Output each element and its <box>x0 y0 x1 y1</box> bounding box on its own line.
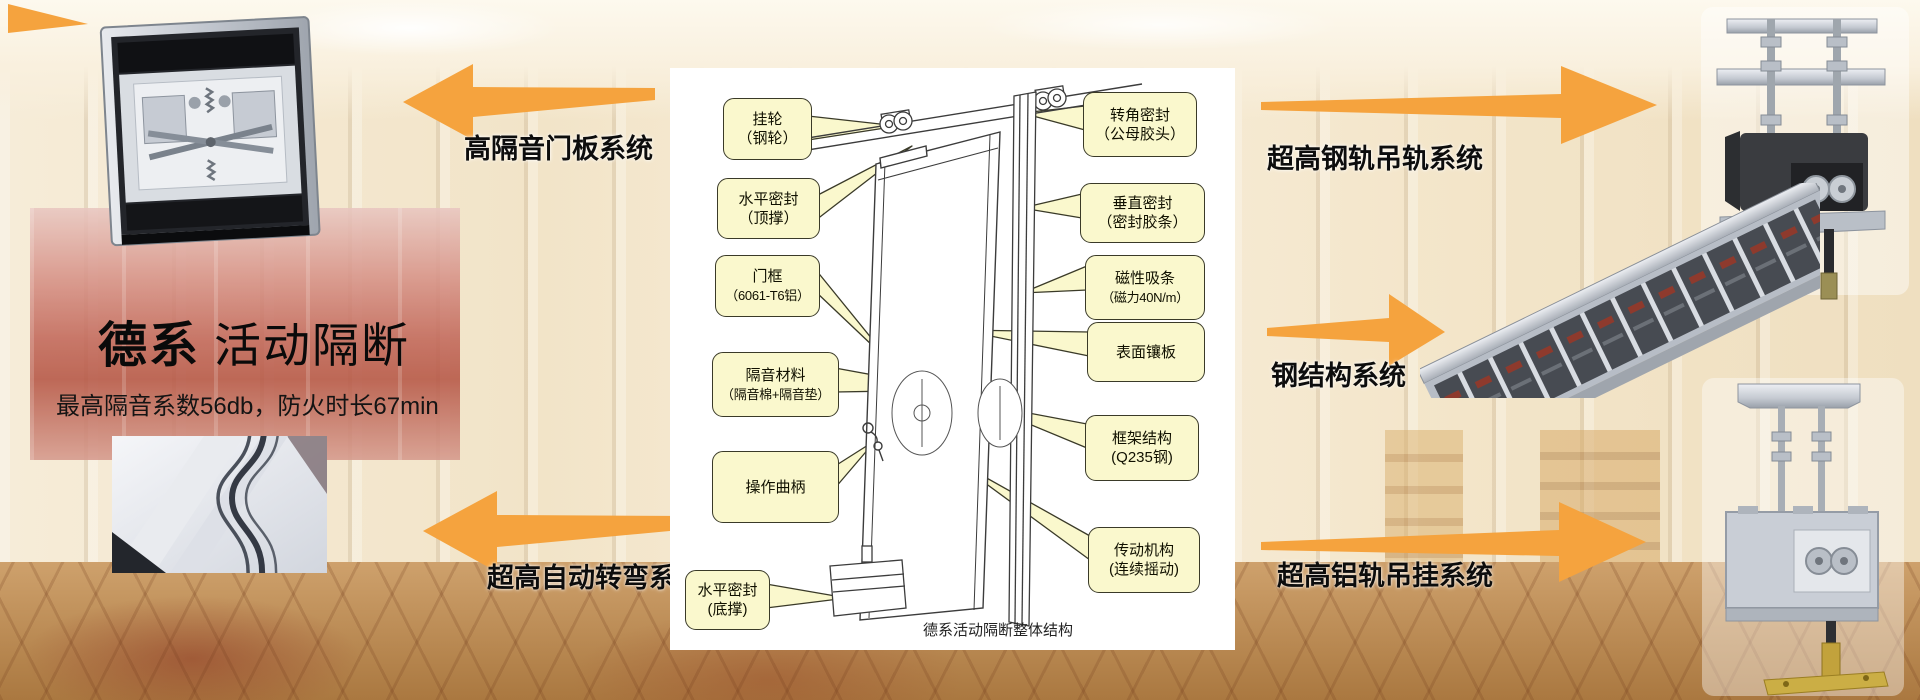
diagram-panel: 挂轮 （钢轮） 水平密封 （顶撑） 门框 （6061-T6铝） 隔音材料 （隔音… <box>670 68 1235 650</box>
diagram-caption: 德系活动隔断整体结构 <box>923 619 1223 640</box>
label-door-panel-system: 高隔音门板系统 <box>464 127 653 166</box>
callout-hanger-wheel: 挂轮 （钢轮） <box>723 98 812 160</box>
door-top-mechanism-photo <box>92 2 332 254</box>
callout-door-frame: 门框 （6061-T6铝） <box>715 255 820 317</box>
corner-orange-wedge <box>0 0 95 40</box>
ceiling-light <box>980 0 1340 50</box>
curved-track-closeup-photo <box>112 436 327 573</box>
product-title-primary: 德系 <box>98 319 200 373</box>
callout-surface-panel: 表面镶板 <box>1087 322 1205 382</box>
callout-transmission: 传动机构 (连续摇动) <box>1088 527 1200 593</box>
label-steel-rail-system: 超高钢轨吊轨系统 <box>1267 137 1483 176</box>
callout-frame-structure: 框架结构 (Q235钢) <box>1085 415 1199 481</box>
steel-structure-photo <box>1420 183 1820 398</box>
arrow-right-steel-rail <box>1261 62 1657 146</box>
label-steel-structure-system: 钢结构系统 <box>1271 354 1406 393</box>
label-aluminum-rail-system: 超高铝轨吊挂系统 <box>1277 554 1493 593</box>
callout-sound-insulation: 隔音材料 （隔音棉+隔音垫） <box>712 352 839 417</box>
callout-horizontal-seal-top: 水平密封 （顶撑） <box>717 178 820 239</box>
aluminum-track-carrier-photo <box>1698 378 1908 700</box>
rear-panel <box>1009 92 1036 626</box>
product-title: 德系活动隔断 <box>98 306 410 377</box>
product-title-secondary: 活动隔断 <box>214 319 410 372</box>
callout-vertical-seal: 垂直密封 （密封胶条） <box>1080 183 1205 243</box>
callout-corner-seal: 转角密封 （公母胶头） <box>1083 92 1197 157</box>
slide: 高隔音门板系统 超高自动转弯系统 超高钢轨吊轨系统 钢结构系统 超高铝轨吊挂系统… <box>0 0 1920 700</box>
callout-horizontal-seal-bottom: 水平密封 (底撑) <box>685 570 770 630</box>
callout-magnetic-strip: 磁性吸条 （磁力40N/m） <box>1085 255 1205 320</box>
trolley-wheels <box>880 86 1066 133</box>
product-subtitle: 最高隔音系数56db，防火时长67min <box>56 386 439 421</box>
callout-operating-crank: 操作曲柄 <box>712 451 839 523</box>
